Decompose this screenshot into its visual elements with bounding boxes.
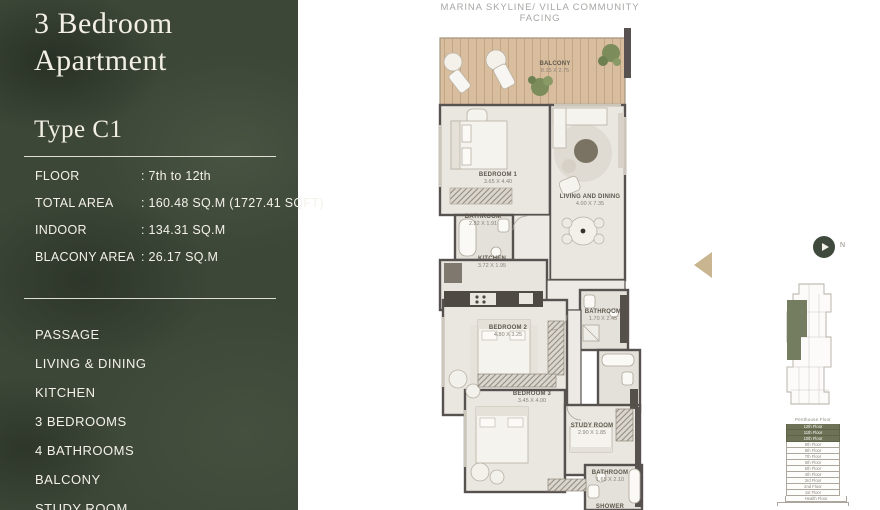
unit-type-label: Type C1	[34, 116, 123, 144]
divider	[24, 298, 276, 299]
bedroom1-furniture	[450, 109, 512, 204]
spec-list: FLOOR : 7th to 12th TOTAL AREA : 160.48 …	[35, 169, 285, 277]
feature-balcony: BALCONY	[35, 472, 147, 487]
balcony-area	[440, 38, 625, 105]
floor-stack-header: Penthouse Floor	[785, 417, 841, 424]
spec-row-balcony-area: BLACONY AREA : 26.17 SQ.M	[35, 250, 285, 264]
feature-list: PASSAGE LIVING & DINING KITCHEN 3 BEDROO…	[35, 327, 147, 510]
floor-plan-drawing	[420, 25, 720, 510]
feature-bedrooms: 3 BEDROOMS	[35, 414, 147, 429]
divider	[24, 156, 276, 157]
compass-icon	[813, 236, 835, 258]
key-plan	[778, 282, 840, 417]
facing-heading: MARINA SKYLINE/ VILLA COMMUNITY FACING	[420, 2, 660, 24]
key-plan-drawing	[778, 282, 840, 412]
feature-passage: PASSAGE	[35, 327, 147, 342]
feature-living-dining: LIVING & DINING	[35, 356, 147, 371]
floor-stack-legend: Penthouse Floor 12th Floor 11th Floor 10…	[785, 417, 841, 506]
floor-stack-base	[777, 502, 849, 506]
entrance-arrow-icon	[694, 252, 712, 278]
floor-plan: BALCONY8.15 X 2.75 BEDROOM 13.65 X 4.40 …	[420, 25, 720, 510]
spec-row-floor: FLOOR : 7th to 12th	[35, 169, 285, 183]
compass-north-label: N	[840, 242, 845, 249]
page-title: 3 Bedroom Apartment	[34, 6, 239, 79]
spec-row-indoor: INDOOR : 134.31 SQ.M	[35, 223, 285, 237]
compass-arrow-icon	[822, 243, 829, 251]
spec-row-total-area: TOTAL AREA : 160.48 SQ.M (1727.41 SQFT)	[35, 196, 285, 210]
sidebar: 3 Bedroom Apartment Type C1 FLOOR : 7th …	[0, 0, 298, 510]
feature-bathrooms: 4 BATHROOMS	[35, 443, 147, 458]
feature-study-room: STUDY ROOM	[35, 501, 147, 510]
feature-kitchen: KITCHEN	[35, 385, 147, 400]
brochure-page: 3 Bedroom Apartment Type C1 FLOOR : 7th …	[0, 0, 880, 510]
